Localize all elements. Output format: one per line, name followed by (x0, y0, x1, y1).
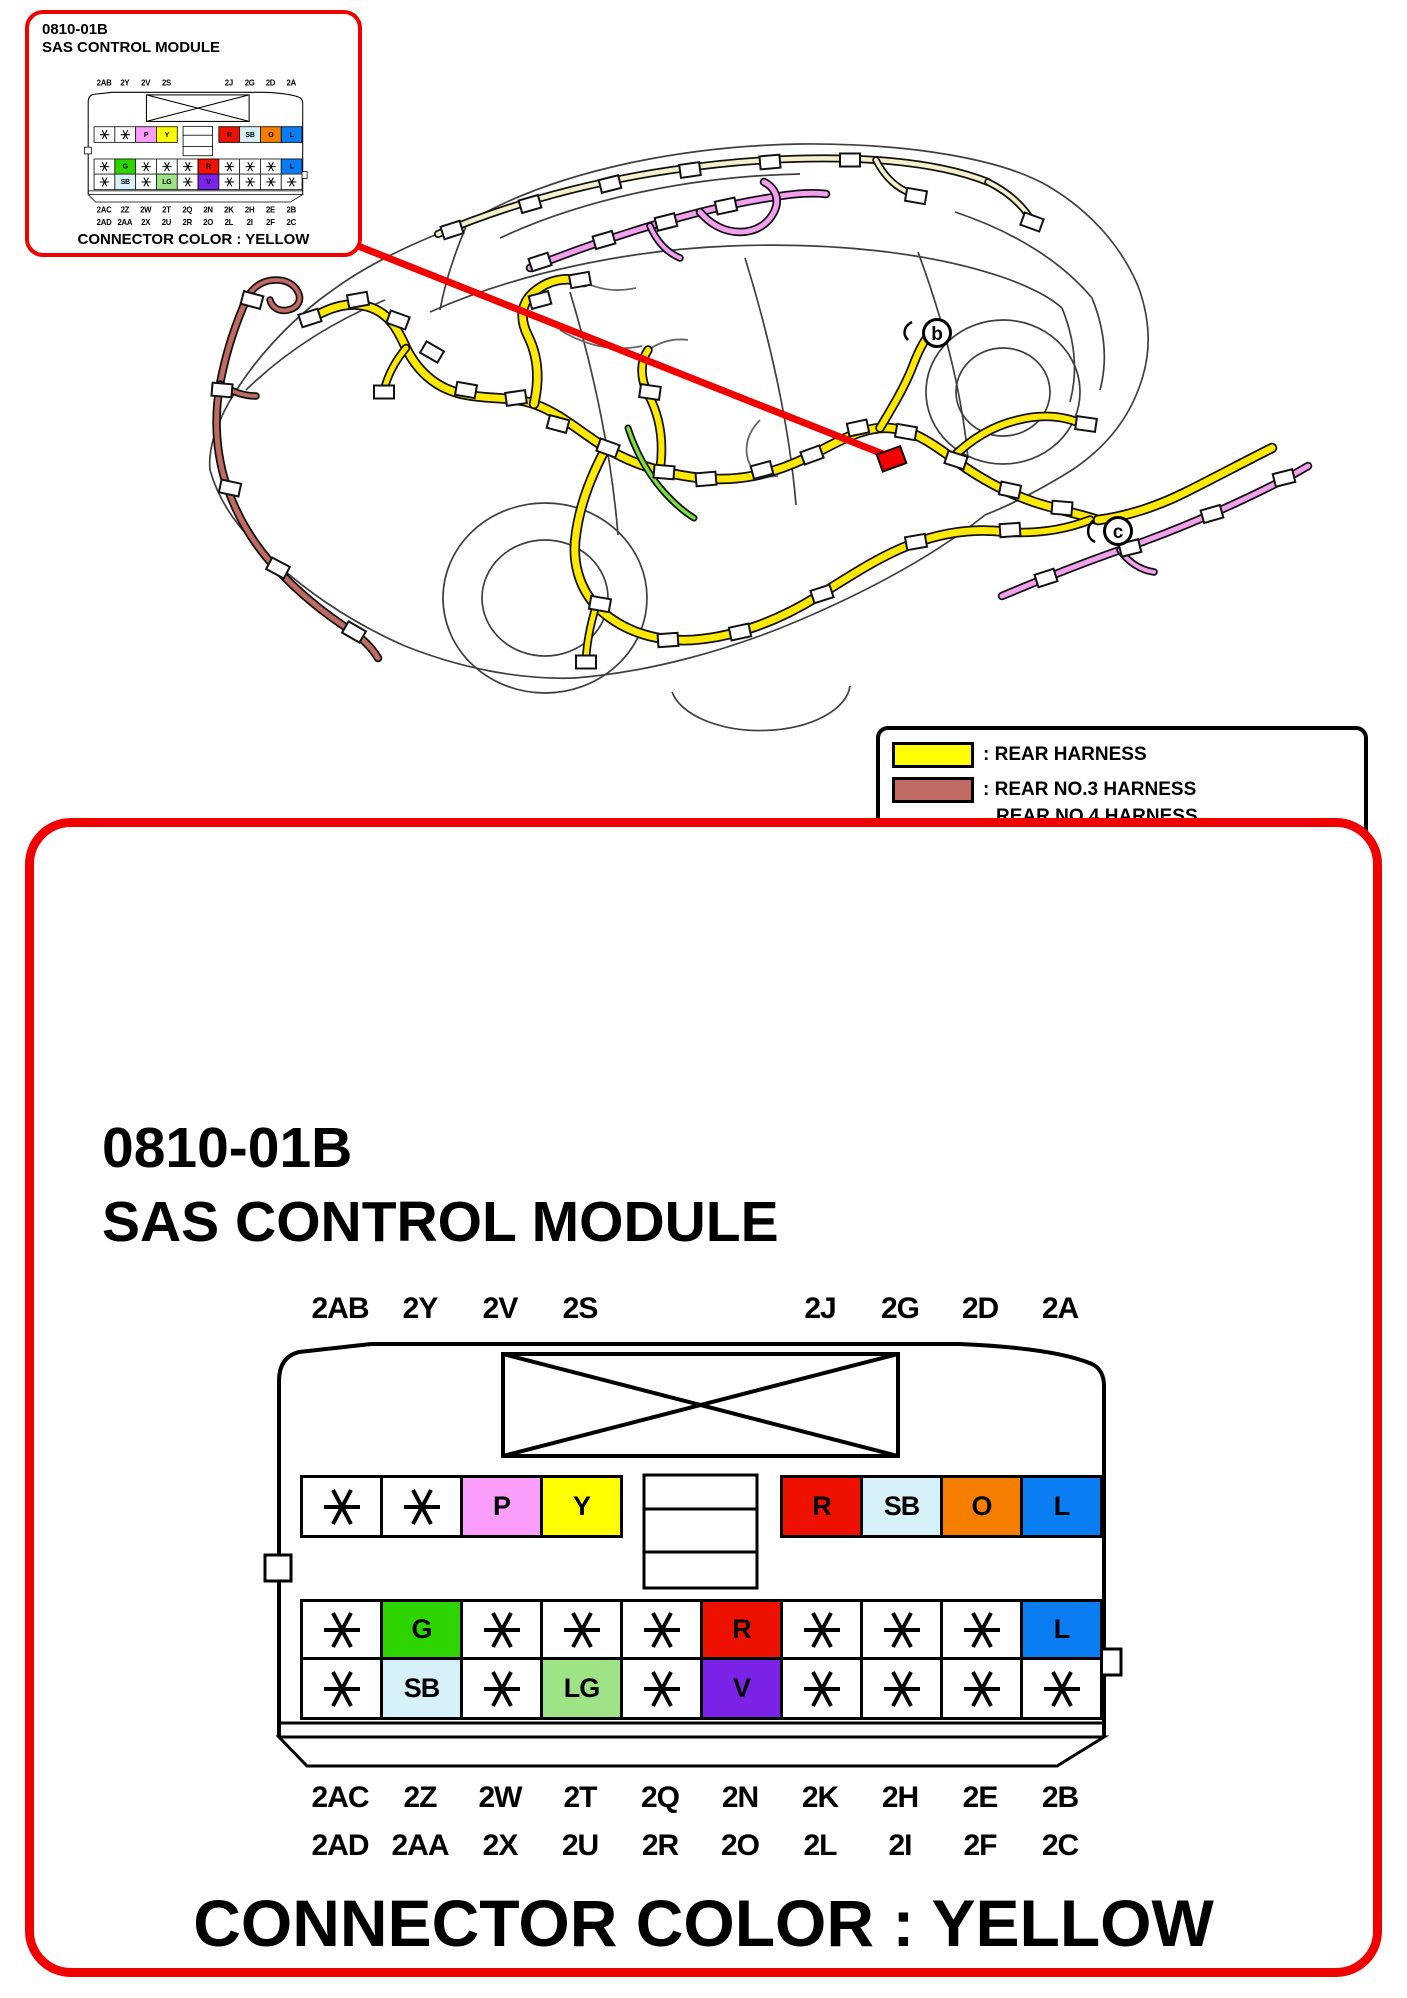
pin-column-label-top: 2AB (295, 1292, 385, 1326)
pin-cell (860, 1657, 943, 1720)
asterisk-pin-icon (1043, 1668, 1081, 1710)
pin-column-label-bottom: 2E (935, 1781, 1025, 1815)
pin-cell (135, 159, 157, 175)
pin-cell (218, 159, 240, 175)
pin-column-label-bottom: 2X (455, 1829, 545, 1863)
pin-cell (300, 1475, 383, 1538)
pin-cell (239, 174, 261, 190)
pin-column-label-bottom: 2N (695, 1781, 785, 1815)
main-connector-box: 0810-01B SAS CONTROL MODULE 2AB2Y2V2S2J2… (25, 818, 1382, 1977)
pin-cell (177, 174, 199, 190)
asterisk-pin-icon (266, 161, 276, 172)
mini-connector-pinout: 2AB2Y2V2S2J2G2D2APYRSBOLGRLSBLGV2AC2Z2W2… (83, 78, 309, 234)
pin-cell (1020, 1657, 1103, 1720)
pin-cell: R (700, 1599, 783, 1660)
pin-column-label-top: 2Y (375, 1292, 465, 1326)
pin-cell (94, 174, 116, 190)
pin-cell: L (281, 126, 303, 142)
pin-cell: LG (156, 174, 178, 190)
legend-label: : REAR HARNESS (983, 741, 1147, 768)
center-key-slots (183, 126, 212, 155)
mini-module-title: SAS CONTROL MODULE (42, 39, 220, 56)
asterisk-pin-icon (323, 1668, 361, 1710)
pin-cell (156, 159, 178, 175)
pin-cell: G (114, 159, 136, 175)
rear-harness-path (880, 334, 930, 428)
pin-column-label-bottom: 2L (775, 1829, 865, 1863)
pin-column-label-top: 2J (775, 1292, 865, 1326)
asterisk-pin-icon (323, 1609, 361, 1651)
pin-column-label-bottom: 2C (1015, 1829, 1105, 1863)
pin-column-label-bottom: 2AC (295, 1781, 385, 1815)
asterisk-pin-icon (963, 1609, 1001, 1651)
connector-color-note: CONNECTOR COLOR : YELLOW (34, 1885, 1373, 1961)
pin-column-label-top: 2S (535, 1292, 625, 1326)
asterisk-pin-icon (963, 1668, 1001, 1710)
pin-cell: SB (380, 1657, 463, 1720)
pin-cell: V (700, 1657, 783, 1720)
pin-column-label-bottom: 2F (935, 1829, 1025, 1863)
pin-cell (380, 1475, 463, 1538)
rear-harness-path (1098, 448, 1272, 520)
pin-column-label-bottom: 2Q (615, 1781, 705, 1815)
pin-column-label-top: 2G (855, 1292, 945, 1326)
pin-column-label-bottom: 2W (455, 1781, 545, 1815)
asterisk-pin-icon (403, 1486, 441, 1528)
pin-cell (218, 174, 240, 190)
pin-cell (281, 174, 303, 190)
pin-cell (135, 174, 157, 190)
pin-cell: L (281, 159, 303, 175)
pin-cell (460, 1657, 543, 1720)
pin-cell (540, 1599, 623, 1660)
pin-column-label-bottom: 2C (280, 218, 303, 227)
mini-connector-color-note: CONNECTOR COLOR : YELLOW (29, 231, 358, 248)
pin-cell: G (380, 1599, 463, 1660)
pin-cell (780, 1657, 863, 1720)
asterisk-pin-icon (323, 1486, 361, 1528)
asterisk-pin-icon (120, 129, 130, 140)
pin-cell (620, 1657, 703, 1720)
pin-column-label-bottom: 2AA (375, 1829, 465, 1863)
pin-cell: LG (540, 1657, 623, 1720)
pin-column-label-top: 2S (155, 79, 178, 88)
pin-cell (300, 1599, 383, 1660)
asterisk-pin-icon (224, 176, 234, 187)
asterisk-pin-icon (266, 176, 276, 187)
pin-column-label-bottom: 2B (280, 206, 303, 215)
pin-cell: L (1020, 1475, 1103, 1538)
pin-cell (94, 159, 116, 175)
legend-swatch (892, 742, 974, 768)
pin-cell (620, 1599, 703, 1660)
asterisk-pin-icon (183, 176, 193, 187)
pin-column-label-top: 2A (280, 79, 303, 88)
door-harness-path (650, 226, 680, 258)
legend-item: : REAR HARNESS (892, 741, 1352, 768)
asterisk-pin-icon (563, 1609, 601, 1651)
service-manual-page: bc 0810-01B SAS CONTROL MODULE 2AB2Y2V2S… (0, 0, 1407, 1998)
module-title: SAS CONTROL MODULE (102, 1189, 779, 1255)
pin-column-label-bottom: 2R (615, 1829, 705, 1863)
pin-cell (860, 1599, 943, 1660)
asterisk-pin-icon (287, 176, 297, 187)
pin-column-label-bottom: 2Z (375, 1781, 465, 1815)
pin-cell: P (135, 126, 157, 142)
pin-column-label-top: 2A (1015, 1292, 1105, 1326)
asterisk-pin-icon (483, 1668, 521, 1710)
mini-connector-callout-box: 0810-01B SAS CONTROL MODULE 2AB2Y2V2S2J2… (25, 10, 362, 257)
asterisk-pin-icon (803, 1668, 841, 1710)
asterisk-pin-icon (100, 161, 110, 172)
pin-cell: O (260, 126, 282, 142)
pin-column-label-bottom: 2O (695, 1829, 785, 1863)
asterisk-pin-icon (141, 161, 151, 172)
callout-c-label: c (1113, 522, 1124, 543)
asterisk-pin-icon (245, 161, 255, 172)
legend-swatch (892, 777, 974, 803)
asterisk-pin-icon (803, 1609, 841, 1651)
asterisk-pin-icon (643, 1609, 681, 1651)
asterisk-pin-icon (245, 176, 255, 187)
pin-cell (94, 126, 116, 142)
rear-harness-path (575, 448, 1006, 640)
connector-pinout: 2AB2Y2V2S2J2G2D2APYRSBOLGRLSBLGV2AC2Z2W2… (259, 1289, 1129, 1889)
asterisk-pin-icon (100, 176, 110, 187)
pin-cell: R (198, 159, 220, 175)
pin-cell (260, 174, 282, 190)
pin-column-label-bottom: 2I (855, 1829, 945, 1863)
pin-cell: V (198, 174, 220, 190)
asterisk-pin-icon (162, 161, 172, 172)
center-key-slots (644, 1475, 757, 1588)
pin-column-label-bottom: 2B (1015, 1781, 1105, 1815)
pin-cell (300, 1657, 383, 1720)
pin-cell: R (780, 1475, 863, 1538)
asterisk-pin-icon (483, 1609, 521, 1651)
pin-cell: L (1020, 1599, 1103, 1660)
pin-column-label-top: 2V (455, 1292, 545, 1326)
pin-cell: Y (540, 1475, 623, 1538)
rear-harness-path (305, 304, 1098, 520)
pin-cell (260, 159, 282, 175)
pin-cell: SB (860, 1475, 943, 1538)
pin-cell (460, 1599, 543, 1660)
pin-cell: Y (156, 126, 178, 142)
pin-cell (940, 1599, 1023, 1660)
pin-cell: SB (114, 174, 136, 190)
section-code: 0810-01B (102, 1115, 352, 1181)
pin-cell: O (940, 1475, 1023, 1538)
pin-cell (239, 159, 261, 175)
pin-cell (114, 126, 136, 142)
asterisk-pin-icon (883, 1609, 921, 1651)
callout-b-label: b (931, 324, 943, 345)
asterisk-pin-icon (183, 161, 193, 172)
rear-no34-harness-path (217, 296, 378, 658)
asterisk-pin-icon (224, 161, 234, 172)
pin-column-label-bottom: 2K (775, 1781, 865, 1815)
pin-cell (780, 1599, 863, 1660)
pin-column-label-bottom: 2T (535, 1781, 625, 1815)
asterisk-pin-icon (141, 176, 151, 187)
rear-harness-path (384, 348, 406, 390)
pin-column-label-bottom: 2AD (295, 1829, 385, 1863)
asterisk-pin-icon (100, 129, 110, 140)
pin-cell (177, 159, 199, 175)
asterisk-pin-icon (643, 1668, 681, 1710)
pin-column-label-top: 2D (935, 1292, 1025, 1326)
pin-column-label-bottom: 2U (535, 1829, 625, 1863)
pin-cell (940, 1657, 1023, 1720)
pin-cell: P (460, 1475, 543, 1538)
asterisk-pin-icon (883, 1668, 921, 1710)
pin-cell: SB (239, 126, 261, 142)
pin-cell: R (218, 126, 240, 142)
mini-section-code: 0810-01B (42, 21, 108, 38)
pin-column-label-bottom: 2H (855, 1781, 945, 1815)
